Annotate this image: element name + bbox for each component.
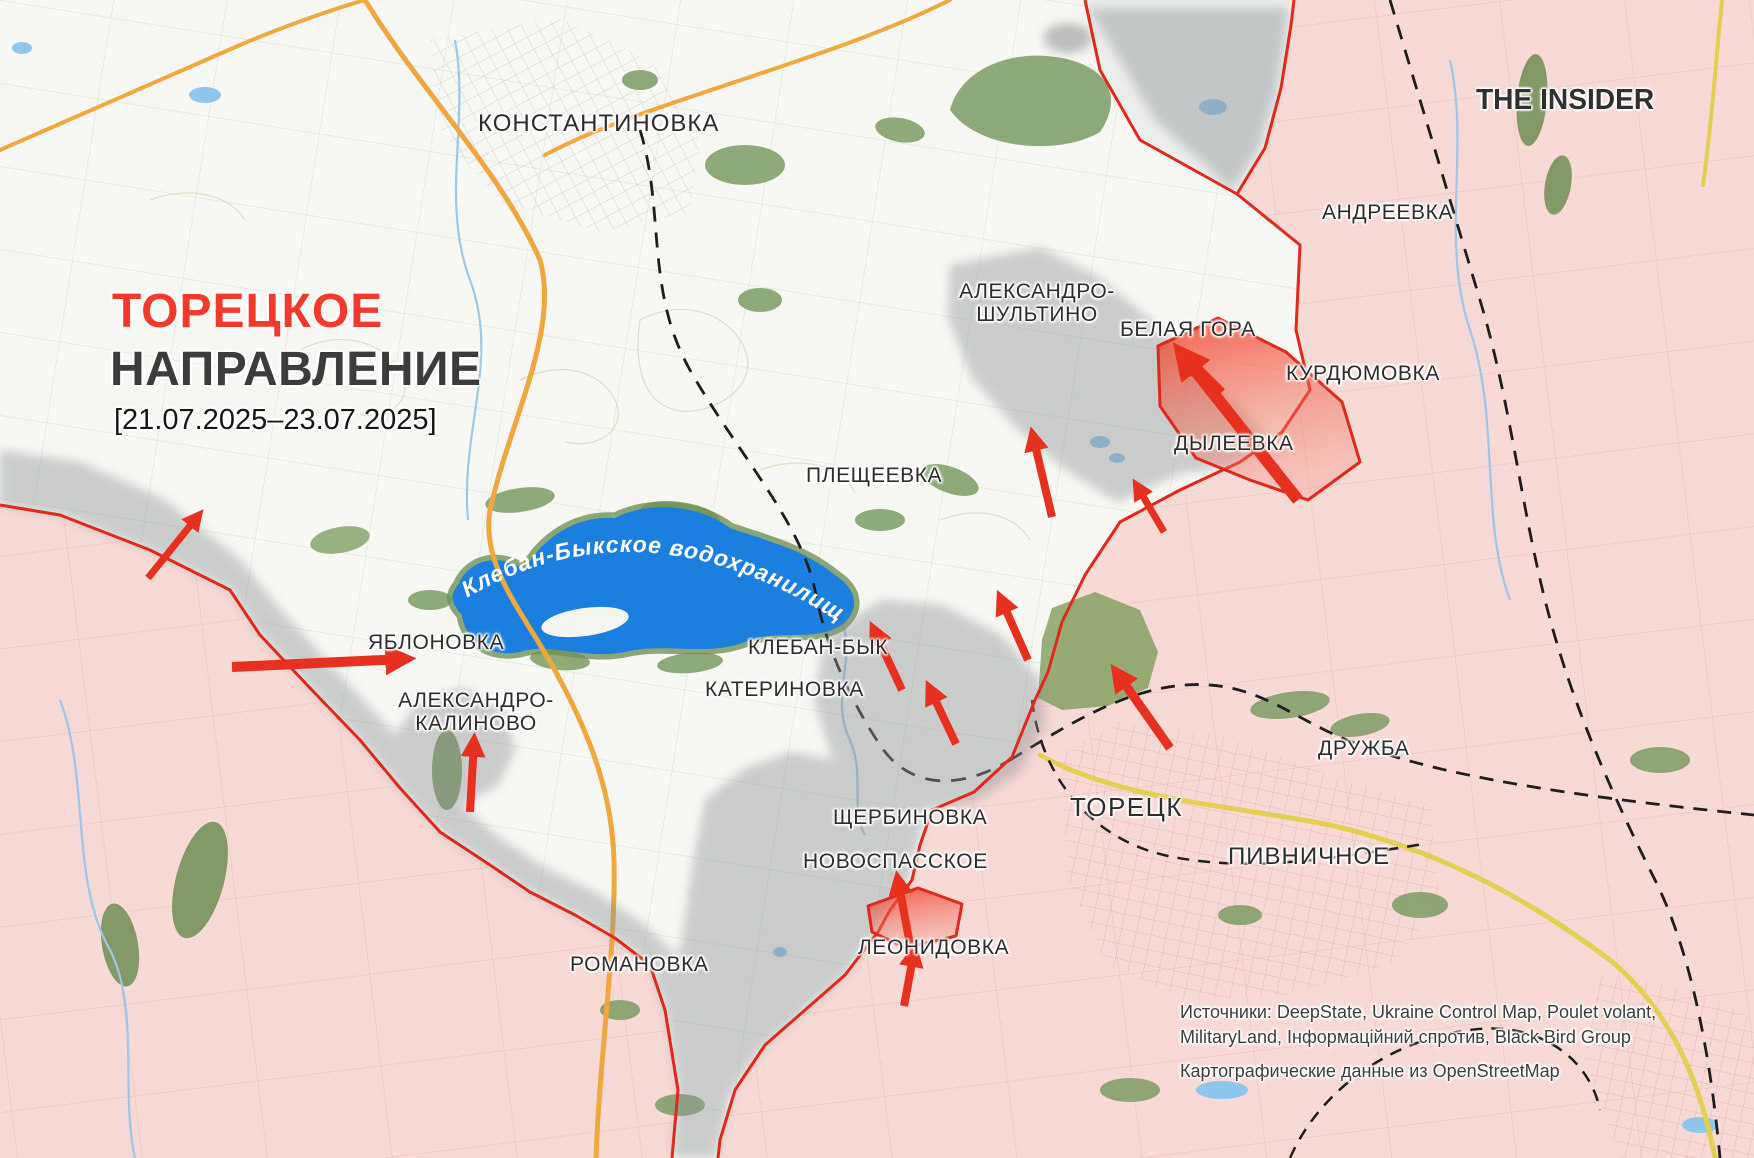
sources-block: Источники: DeepState, Ukraine Control Ma… — [1180, 1000, 1656, 1083]
city-label-romanovka: РОМАНОВКА — [570, 953, 709, 977]
city-label-kurdyumovka: КУРДЮМОВКА — [1286, 362, 1440, 386]
city-label-aleksandro-shultino: АЛЕКСАНДРО-ШУЛЬТИНО — [947, 280, 1127, 326]
map-title-accent: ТОРЕЦКОЕ — [112, 284, 383, 339]
city-label-kleban-byk: КЛЕБАН-БЫК — [748, 636, 888, 660]
map-date-range: [21.07.2025–23.07.2025] — [114, 404, 437, 437]
the-insider-logo: THE INSIDER — [1476, 84, 1654, 117]
city-label-scherbinovka: ЩЕРБИНОВКА — [833, 806, 987, 830]
city-label-novospasskoe: НОВОСПАССКОЕ — [803, 850, 988, 874]
city-label-dyleevka: ДЫЛЕЕВКА — [1174, 432, 1294, 456]
city-label-leonidovka: ЛЕОНИДОВКА — [858, 936, 1009, 960]
city-label-pivnichnoe: ПИВНИЧНОЕ — [1228, 843, 1390, 871]
map-canvas: Клебан-Быкское водохранилище — [0, 0, 1754, 1158]
city-label-konstantinovka: КОНСТАНТИНОВКА — [478, 110, 719, 138]
city-label-yablonovka: ЯБЛОНОВКА — [368, 631, 504, 655]
city-label-aleksandro-kalinovo: АЛЕКСАНДРО-КАЛИНОВО — [384, 689, 569, 735]
map-title: НАПРАВЛЕНИЕ — [110, 342, 482, 397]
sources-line3: Картографические данные из OpenStreetMap — [1180, 1059, 1656, 1084]
city-label-katerinovka: КАТЕРИНОВКА — [705, 678, 864, 702]
sources-line1: Источники: DeepState, Ukraine Control Ma… — [1180, 1000, 1656, 1025]
city-label-toretsk: ТОРЕЦК — [1070, 792, 1183, 823]
city-label-plescheevka: ПЛЕЩЕЕВКА — [806, 464, 942, 488]
map-stage: Клебан-Быкское водохранилище ТОРЕЦКОЕ НА… — [0, 0, 1754, 1158]
city-label-druzhba: ДРУЖБА — [1318, 737, 1409, 761]
sources-line2: MilitaryLand, Інформаційний спротив, Bla… — [1180, 1025, 1656, 1050]
city-label-andreevka: АНДРЕЕВКА — [1322, 201, 1453, 225]
city-label-belaya-gora: БЕЛАЯ ГОРА — [1120, 318, 1256, 342]
